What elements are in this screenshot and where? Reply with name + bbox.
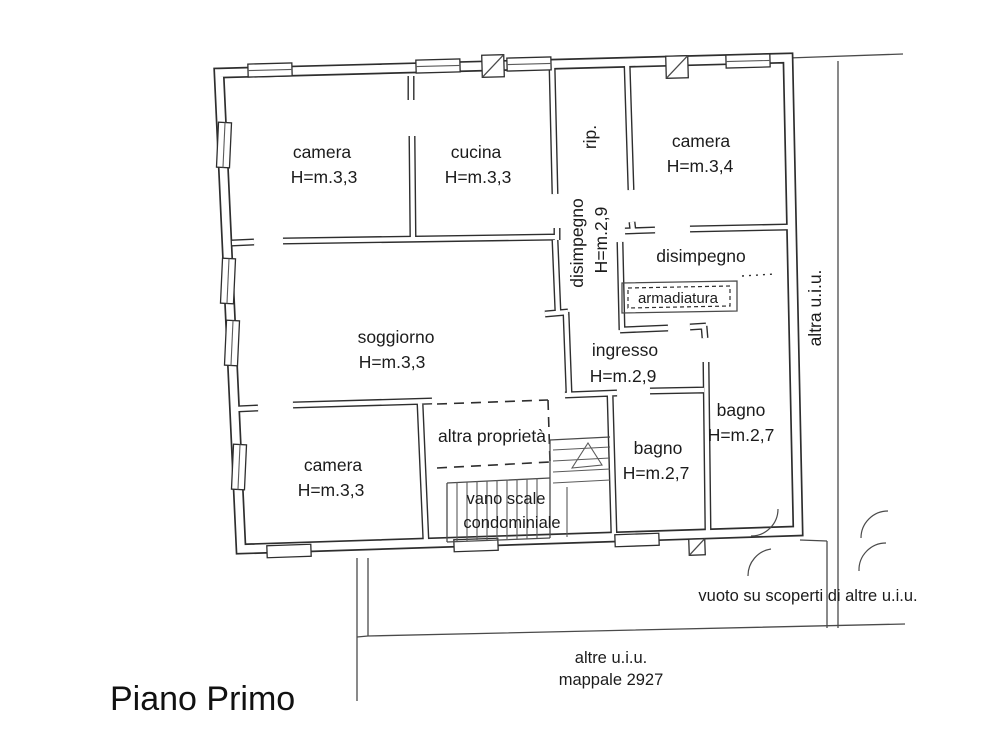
boundary-line-bottom-slanted (357, 624, 905, 637)
note-mappale: mappale 2927 (559, 671, 664, 689)
label-rip: rip. (580, 125, 600, 149)
label-condominiale: condominiale (463, 514, 560, 532)
label-bagno-c: bagno (634, 438, 683, 458)
sill-bottom-1 (267, 544, 311, 558)
stair-lower-outline (447, 478, 550, 542)
label-camera-sw-height: H=m.3,3 (298, 480, 365, 500)
door-arc-3 (861, 511, 888, 538)
door-arc-4 (859, 543, 886, 571)
note-vuoto-su-scoperti: vuoto su scoperti di altre u.i.u. (698, 587, 917, 605)
label-disimpegno-w-height: H=m.2,9 (591, 207, 611, 274)
dotted-door-opening (742, 274, 775, 276)
door-arc-2 (748, 549, 771, 576)
stair-upper-top (550, 437, 610, 440)
label-bagno-e-height: H=m.2,7 (708, 425, 775, 445)
label-soggiorno-height: H=m.3,3 (359, 352, 426, 372)
label-ingresso: ingresso (592, 340, 658, 360)
label-cucina-height: H=m.3,3 (445, 167, 512, 187)
sill-bottom-3 (615, 533, 659, 547)
label-disimpegno-w: disimpegno (567, 198, 587, 288)
label-camera-ne-height: H=m.3,4 (667, 156, 734, 176)
label-altra-uiu: altra u.i.u. (805, 270, 825, 347)
label-camera-ne: camera (672, 131, 731, 151)
page-title: Piano Primo (110, 680, 295, 718)
boundary-line-top-extension (788, 54, 903, 58)
label-vano-scale: vano scale (467, 490, 546, 508)
label-ingresso-height: H=m.2,9 (590, 366, 657, 386)
annotations: vuoto su scoperti di altre u.i.u. altre … (559, 587, 918, 689)
floor-plan-page: camera H=m.3,3 cucina H=m.3,3 rip. disim… (0, 0, 992, 752)
boundary-line-strip-cap (800, 540, 827, 541)
stair-direction-arrow (572, 443, 602, 468)
dashed-boundary-top (437, 400, 548, 404)
label-bagno-c-height: H=m.2,7 (623, 463, 690, 483)
dashed-boundary-bottom (437, 462, 550, 468)
label-camera-nw: camera (293, 142, 352, 162)
label-camera-sw: camera (304, 455, 363, 475)
label-cucina: cucina (451, 142, 502, 162)
label-camera-nw-height: H=m.3,3 (291, 167, 358, 187)
door-swing-arcs (748, 509, 888, 576)
label-bagno-e: bagno (717, 400, 766, 420)
label-altra-proprieta: altra proprietà (438, 426, 546, 446)
label-disimpegno-e: disimpegno (656, 246, 746, 266)
note-altre-uiu: altre u.i.u. (575, 649, 647, 667)
floor-plan-drawing: camera H=m.3,3 cucina H=m.3,3 rip. disim… (0, 0, 992, 752)
label-soggiorno: soggiorno (358, 327, 435, 347)
label-armadiatura: armadiatura (638, 290, 719, 307)
